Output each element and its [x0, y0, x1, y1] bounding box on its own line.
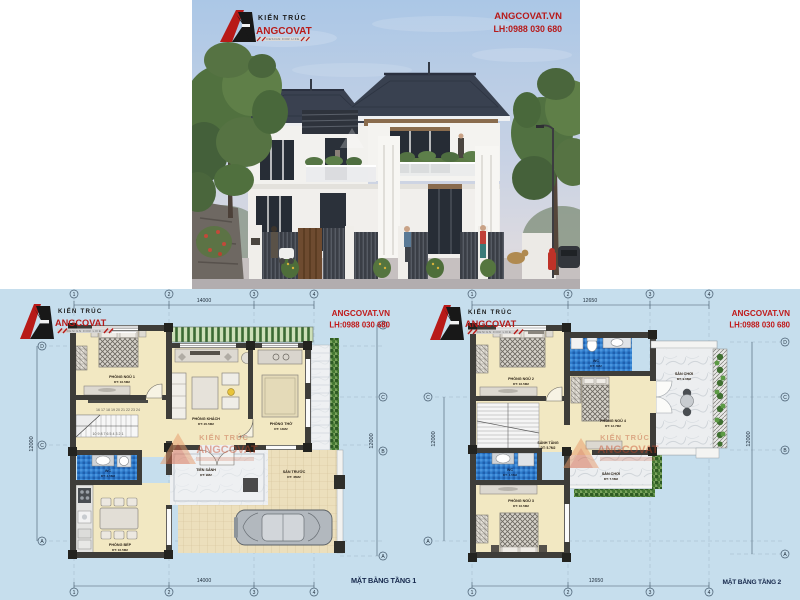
svg-text:PHÒNG THỜ: PHÒNG THỜ: [270, 421, 293, 426]
svg-text:C: C: [381, 395, 385, 401]
svg-text:1: 1: [73, 590, 76, 596]
svg-text:4: 4: [708, 292, 711, 298]
svg-text:C: C: [40, 443, 44, 449]
svg-text:ANGCOVAT: ANGCOVAT: [256, 26, 312, 37]
svg-text:2: 2: [168, 590, 171, 596]
svg-text:ANGCOVAT: ANGCOVAT: [196, 444, 258, 456]
svg-text:ANGCOVAT: ANGCOVAT: [55, 318, 107, 328]
svg-text:DT: 4.5M2: DT: 4.5M2: [101, 474, 116, 478]
svg-text:WC: WC: [105, 469, 111, 473]
svg-text:1: 1: [471, 590, 474, 596]
svg-text:DT: 16.5M2: DT: 16.5M2: [112, 548, 128, 552]
svg-text:D: D: [40, 344, 44, 350]
svg-text:LH:0988 030 680: LH:0988 030 680: [494, 24, 563, 34]
svg-text:DESIGN FOR LIFE: DESIGN FOR LIFE: [266, 37, 299, 41]
svg-text:14000: 14000: [197, 578, 212, 584]
svg-text:DT: 16.5M2: DT: 16.5M2: [513, 382, 529, 386]
svg-text:LH:0988 030 680: LH:0988 030 680: [729, 321, 790, 330]
svg-text:DT: 20.5M2: DT: 20.5M2: [198, 422, 214, 426]
svg-text:SÂN CHƠI: SÂN CHƠI: [675, 371, 693, 376]
svg-text:PHÒNG NGỦ 1: PHÒNG NGỦ 1: [109, 374, 135, 379]
svg-text:ANGCOVAT.VN: ANGCOVAT.VN: [732, 309, 790, 318]
svg-text:DT: 16.5M2: DT: 16.5M2: [114, 380, 130, 384]
svg-text:1: 1: [73, 292, 76, 298]
svg-text:12000: 12000: [29, 436, 35, 451]
svg-text:ANGCOVAT.VN: ANGCOVAT.VN: [332, 309, 390, 318]
svg-text:WC: WC: [593, 359, 599, 363]
svg-text:DT: 14M2: DT: 14M2: [274, 427, 288, 431]
svg-text:12000: 12000: [431, 431, 437, 446]
svg-text:KIẾN TRÚC: KIẾN TRÚC: [199, 432, 249, 442]
svg-text:4: 4: [313, 590, 316, 596]
svg-text:DT: 9.6M2: DT: 9.6M2: [677, 377, 692, 381]
svg-text:TIỀN SẢNH: TIỀN SẢNH: [196, 467, 216, 472]
svg-text:12000: 12000: [746, 431, 752, 446]
svg-text:3: 3: [649, 590, 652, 596]
svg-text:DT: 5.7M2: DT: 5.7M2: [541, 446, 556, 450]
svg-text:3: 3: [649, 292, 652, 298]
svg-text:DT: 7.5M2: DT: 7.5M2: [604, 477, 619, 481]
svg-text:ANGCOVAT.VN: ANGCOVAT.VN: [494, 11, 562, 22]
svg-text:DT: 4M2: DT: 4M2: [590, 364, 602, 368]
svg-text:DT: 9M2: DT: 9M2: [200, 473, 212, 477]
svg-text:DT: 4.5M2: DT: 4.5M2: [503, 473, 518, 477]
svg-text:3: 3: [253, 590, 256, 596]
svg-text:SẢNH TẦNG: SẢNH TẦNG: [537, 440, 559, 445]
svg-text:10 9 8 7 6 5 4 3 2 1: 10 9 8 7 6 5 4 3 2 1: [93, 432, 124, 436]
svg-text:LH:0988 030 680: LH:0988 030 680: [329, 321, 390, 330]
svg-text:2: 2: [567, 292, 570, 298]
svg-text:1: 1: [471, 292, 474, 298]
svg-text:16 17 18 19 20 21 22 23 24: 16 17 18 19 20 21 22 23 24: [96, 408, 140, 412]
svg-text:2: 2: [567, 590, 570, 596]
svg-text:12650: 12650: [583, 298, 598, 304]
svg-text:KIẾN TRÚC: KIẾN TRÚC: [58, 308, 103, 315]
svg-text:PHÒNG NGỦ 3: PHÒNG NGỦ 3: [508, 498, 534, 503]
svg-text:SÂN TRƯỚC: SÂN TRƯỚC: [283, 469, 306, 474]
svg-text:PHÒNG KHÁCH: PHÒNG KHÁCH: [192, 416, 220, 421]
svg-text:ANGCOVAT: ANGCOVAT: [465, 319, 517, 329]
svg-text:KIẾN TRÚC: KIẾN TRÚC: [468, 309, 513, 316]
svg-text:2: 2: [168, 292, 171, 298]
svg-text:C: C: [426, 395, 430, 401]
svg-text:SÂN CHƠI: SÂN CHƠI: [602, 471, 620, 476]
svg-text:C: C: [783, 395, 787, 401]
svg-text:3: 3: [253, 292, 256, 298]
svg-text:PHÒNG BẾP: PHÒNG BẾP: [109, 542, 132, 547]
svg-text:D: D: [783, 340, 787, 346]
svg-text:DT: 16.5M2: DT: 16.5M2: [513, 504, 529, 508]
svg-text:4: 4: [313, 292, 316, 298]
svg-text:DESIGN FOR LIFE: DESIGN FOR LIFE: [67, 329, 102, 333]
svg-text:PHÒNG NGỦ 4: PHÒNG NGỦ 4: [600, 418, 627, 423]
svg-text:DESIGN FOR LIFE: DESIGN FOR LIFE: [477, 330, 512, 334]
svg-text:12650: 12650: [589, 578, 604, 584]
svg-text:PHÒNG NGỦ 2: PHÒNG NGỦ 2: [508, 376, 534, 381]
svg-text:DT: 12.7M2: DT: 12.7M2: [605, 424, 621, 428]
svg-text:4: 4: [708, 590, 711, 596]
svg-text:WC: WC: [507, 468, 513, 472]
svg-text:KIẾN TRÚC: KIẾN TRÚC: [600, 432, 650, 442]
svg-text:DT: 45M2: DT: 45M2: [287, 475, 301, 479]
svg-text:ANGCOVAT: ANGCOVAT: [597, 444, 659, 456]
svg-text:12000: 12000: [369, 433, 375, 448]
svg-text:14000: 14000: [197, 298, 212, 304]
